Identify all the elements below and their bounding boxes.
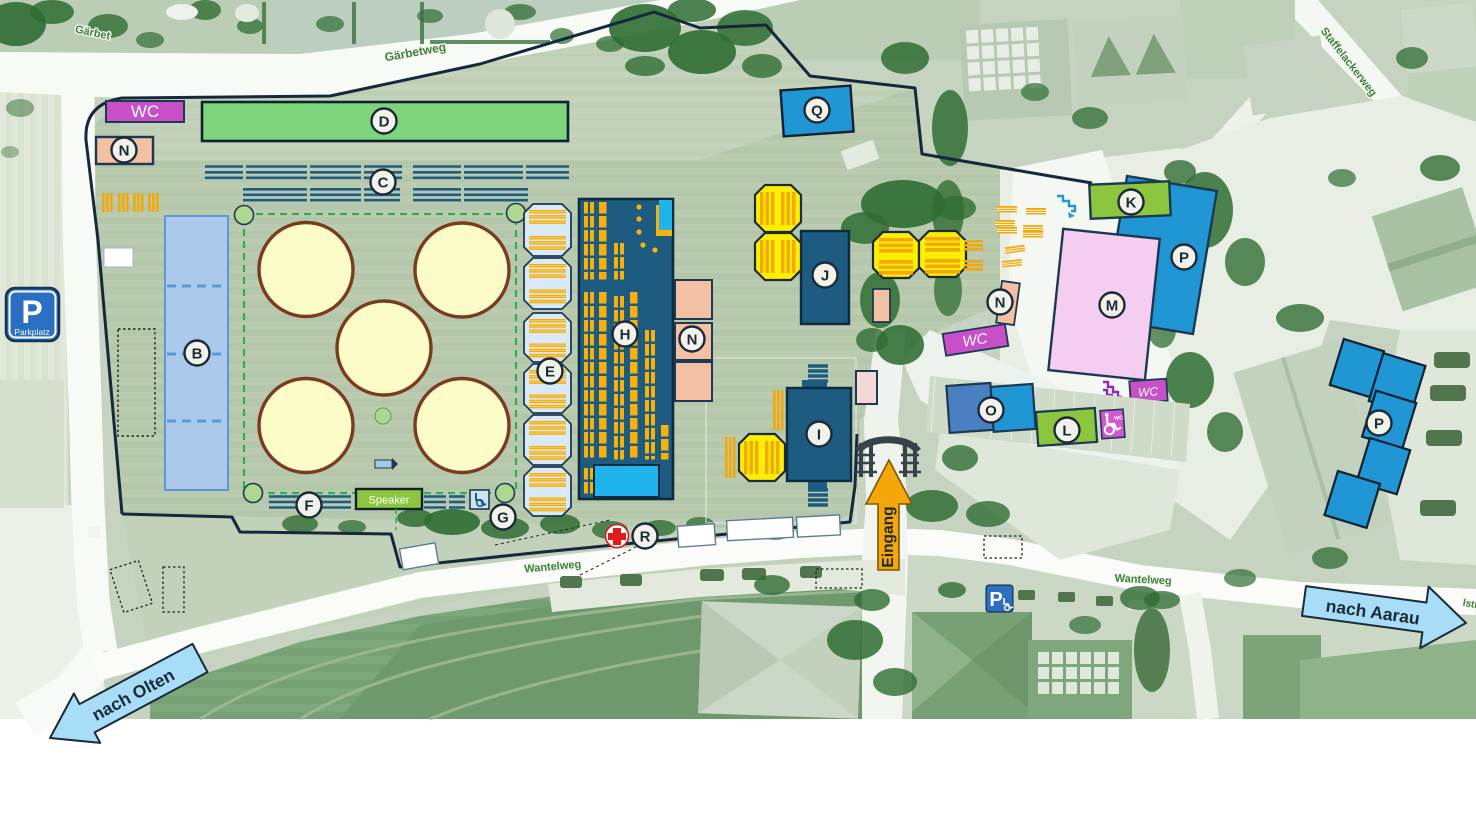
svg-text:I: I xyxy=(817,426,821,443)
svg-text:H: H xyxy=(620,326,631,343)
svg-text:K: K xyxy=(1126,194,1137,211)
svg-text:Q: Q xyxy=(811,102,823,119)
svg-text:E: E xyxy=(545,363,555,380)
svg-text:Eingang: Eingang xyxy=(880,506,897,567)
svg-text:G: G xyxy=(497,509,509,526)
svg-text:P: P xyxy=(21,294,42,330)
svg-text:WC: WC xyxy=(131,102,159,121)
svg-text:C: C xyxy=(378,174,389,191)
svg-text:R: R xyxy=(640,528,651,545)
svg-text:P: P xyxy=(1374,415,1384,432)
svg-text:N: N xyxy=(995,294,1006,311)
svg-text:P: P xyxy=(1179,249,1189,266)
svg-text:B: B xyxy=(192,345,203,362)
svg-text:O: O xyxy=(985,402,997,419)
svg-text:M: M xyxy=(1106,297,1119,314)
svg-text:F: F xyxy=(304,497,313,514)
svg-text:Parkplatz: Parkplatz xyxy=(14,327,49,337)
svg-text:WC: WC xyxy=(1138,384,1159,399)
svg-text:L: L xyxy=(1062,422,1071,439)
svg-text:N: N xyxy=(119,142,130,159)
svg-text:WC: WC xyxy=(1114,415,1124,422)
svg-text:J: J xyxy=(821,267,829,284)
svg-text:Speaker: Speaker xyxy=(369,495,410,507)
svg-text:D: D xyxy=(379,113,390,130)
svg-text:P: P xyxy=(989,589,1002,611)
svg-text:N: N xyxy=(687,331,698,348)
